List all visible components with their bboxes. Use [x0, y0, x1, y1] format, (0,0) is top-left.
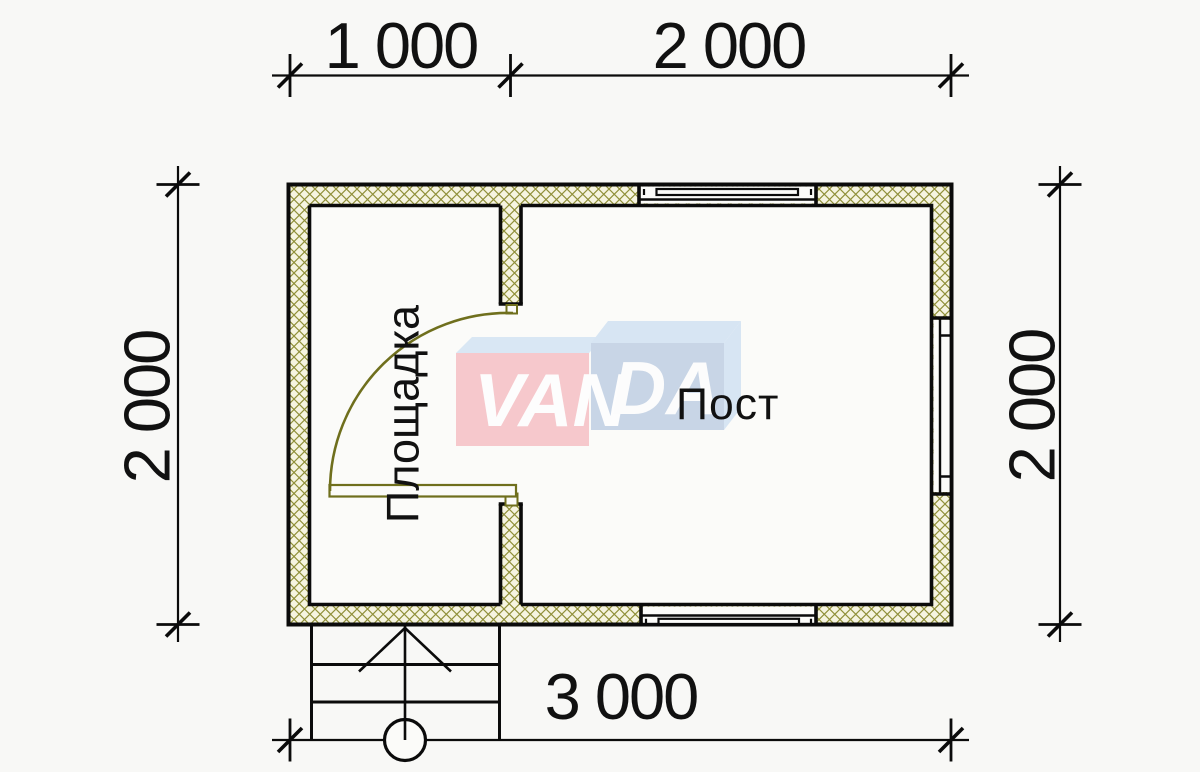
svg-text:2 000: 2 000	[111, 331, 184, 484]
svg-text:1 000: 1 000	[325, 9, 478, 82]
svg-text:VAN: VAN	[474, 358, 629, 442]
svg-text:3 000: 3 000	[545, 660, 698, 733]
svg-text:Пост: Пост	[676, 380, 779, 429]
svg-text:Площадка: Площадка	[378, 304, 429, 523]
svg-text:2 000: 2 000	[653, 9, 806, 82]
svg-text:2 000: 2 000	[996, 330, 1069, 483]
